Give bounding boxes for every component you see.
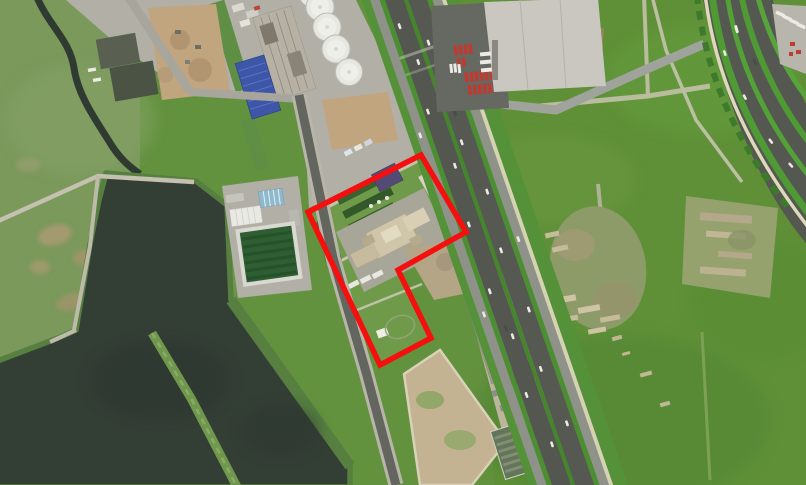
storage-tank-part	[325, 25, 329, 29]
satellite-canvas	[0, 0, 806, 485]
left-field-bare-patches-part	[16, 158, 40, 172]
construction-pad-part	[185, 60, 190, 64]
walled-compound-part	[385, 196, 389, 200]
north-pad-part	[796, 50, 801, 54]
pondside-facility	[222, 176, 312, 298]
retention-pond-part	[240, 404, 320, 456]
construction-pad-part	[175, 30, 181, 34]
storage-tank-part	[318, 5, 322, 9]
apron-dirt	[322, 92, 398, 150]
walled-compound-part	[369, 204, 373, 208]
satellite-image	[0, 0, 806, 485]
storage-tank-part	[347, 70, 351, 74]
field-ruins-east-part	[682, 196, 778, 298]
storage-tank-part	[334, 47, 338, 51]
construction-pad-part	[188, 58, 212, 82]
field-ruins-west-part	[555, 229, 595, 261]
field-ruins-east	[682, 196, 778, 298]
warehouse-pad-part	[484, 0, 606, 92]
storage-tank	[336, 59, 363, 86]
treatment-basin	[235, 221, 302, 287]
dirt-field-south-part	[444, 430, 476, 450]
north-pad-part	[789, 52, 793, 56]
left-field-bare-patches-part	[30, 260, 50, 274]
field-ruins-east-part	[728, 230, 756, 250]
field-ruins-west-part	[593, 282, 637, 318]
warehouse-pad	[480, 0, 606, 92]
dirt-field-south-part	[416, 391, 444, 409]
north-pad-part	[790, 42, 795, 46]
construction-pad-part	[195, 45, 201, 49]
walled-compound-part	[377, 200, 381, 204]
warehouse-pad-part	[492, 40, 498, 80]
